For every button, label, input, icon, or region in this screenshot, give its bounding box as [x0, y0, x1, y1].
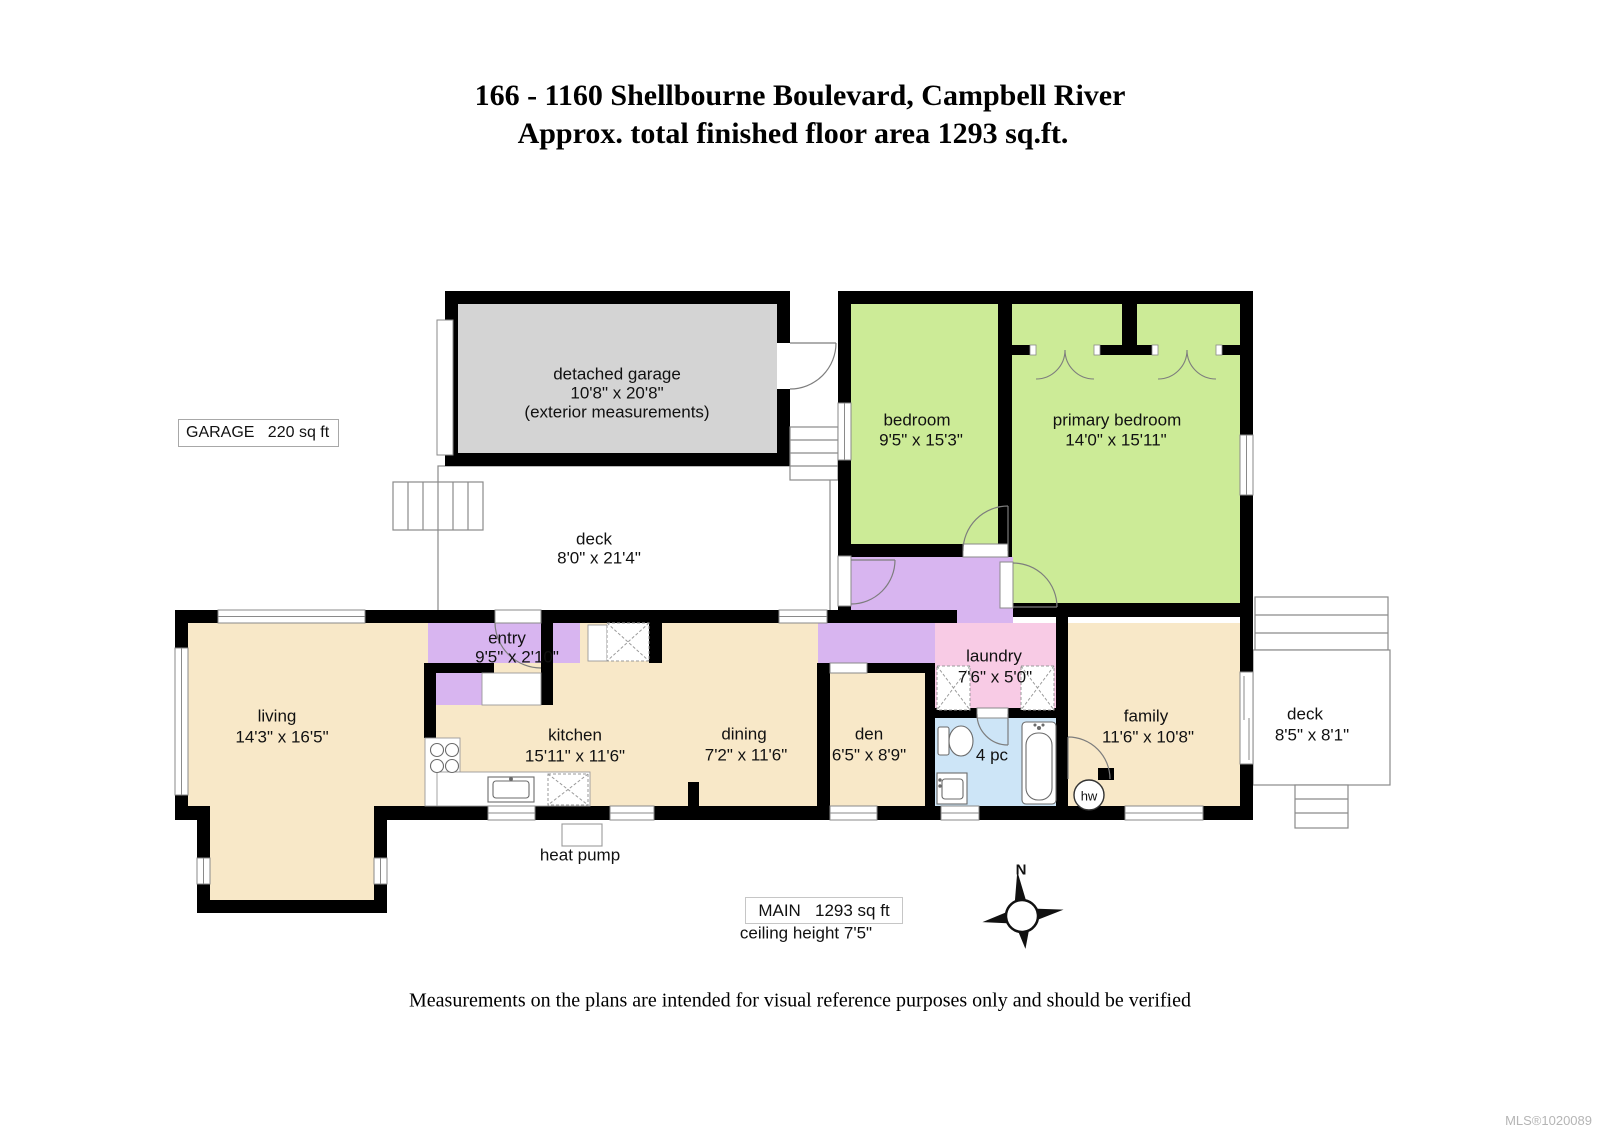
- room-label-kitchen: kitchen: [548, 726, 602, 745]
- patio-slider-family: [1240, 672, 1253, 764]
- bath-door-opening: [977, 708, 1008, 718]
- living-bay: [197, 806, 387, 913]
- entry-door-opening: [495, 610, 541, 623]
- window-living-top: [218, 610, 365, 623]
- hall-exterior-door-opening: [838, 556, 851, 606]
- window-living-left: [175, 648, 188, 795]
- room-dims-dining: 7'2" x 11'6": [705, 746, 788, 765]
- garage-side-door-opening: [777, 343, 790, 389]
- entry-closet: [482, 673, 541, 705]
- kitchen-sink-icon: [488, 777, 534, 802]
- room-dims-den: 6'5" x 8'9": [832, 746, 906, 765]
- window-bay-left: [197, 858, 210, 884]
- primary-door-opening: [1000, 562, 1013, 608]
- toilet-icon: [938, 726, 973, 756]
- bath-vanity-icon: [937, 773, 967, 804]
- dishwasher-icon: [548, 774, 588, 805]
- room-dims-garage: 10'8" x 20'8": [570, 384, 663, 403]
- room-label-deck-right: deck: [1287, 705, 1323, 724]
- window-bath: [941, 806, 979, 820]
- right-deck-stairs: [1295, 785, 1348, 828]
- room-dims-entry: 9'5" x 2'10": [475, 648, 559, 667]
- window-top-dining: [779, 610, 827, 623]
- main-floor-tan: [188, 623, 1240, 806]
- window-den: [830, 806, 877, 820]
- room-label-living: living: [258, 707, 297, 726]
- window-bay-right: [374, 858, 387, 884]
- garage-area-badge: GARAGE 220 sq ft: [178, 419, 339, 447]
- room-label-entry: entry: [488, 629, 526, 648]
- room-label-primary: primary bedroom: [1053, 411, 1182, 430]
- north-label: N: [1016, 861, 1027, 880]
- room-label-dining: dining: [721, 725, 766, 744]
- bedroom-door-opening: [963, 544, 1008, 557]
- garage-door: [437, 320, 453, 455]
- heat-pump-label: heat pump: [540, 846, 620, 865]
- window-kitchen: [488, 806, 535, 820]
- window-family: [1125, 806, 1203, 820]
- kitchen-cabinet: [588, 625, 607, 661]
- room-dims-family: 11'6" x 10'8": [1102, 728, 1194, 747]
- pantry-icon: [607, 623, 649, 661]
- room-label-deck-upper: deck: [576, 530, 612, 549]
- garage-side-door-arc: [790, 343, 836, 389]
- room-dims-bedroom: 9'5" x 15'3": [879, 431, 963, 450]
- room-label-laundry: laundry: [966, 647, 1022, 666]
- room-dims-kitchen: 15'11" x 11'6": [525, 747, 625, 766]
- hot-water-label: hw: [1081, 787, 1098, 806]
- page-title-line1: 166 - 1160 Shellbourne Boulevard, Campbe…: [475, 79, 1126, 113]
- bathtub-icon: [1022, 722, 1056, 804]
- room-dims-primary: 14'0" x 15'11": [1065, 431, 1166, 450]
- window-primary-right: [1240, 435, 1253, 495]
- floorplan-drawing: [0, 0, 1600, 1130]
- room-label-family: family: [1124, 707, 1168, 726]
- room-label-den: den: [855, 725, 883, 744]
- floorplan-page: 166 - 1160 Shellbourne Boulevard, Campbe…: [0, 0, 1600, 1130]
- mls-number: MLS®1020089: [1505, 1113, 1592, 1128]
- den-door-opening: [830, 663, 867, 673]
- main-area-badge: MAIN 1293 sq ft: [745, 897, 903, 924]
- room-label-garage: detached garage: [553, 365, 681, 384]
- disclaimer-text: Measurements on the plans are intended f…: [409, 990, 1191, 1013]
- room-label-bedroom: bedroom: [883, 411, 950, 430]
- window-dining: [610, 806, 654, 820]
- room-dims-deck-right: 8'5" x 8'1": [1275, 726, 1349, 745]
- heat-pump-unit: [562, 824, 602, 846]
- main-floor-fills: [188, 623, 1240, 806]
- room-dims-laundry: 7'6" x 5'0": [958, 668, 1032, 687]
- compass-icon: [978, 867, 1068, 953]
- side-steps: [790, 427, 838, 480]
- room-dims-deck-upper: 8'0" x 21'4": [557, 549, 641, 568]
- ceiling-height-label: ceiling height 7'5": [740, 924, 872, 943]
- window-bedroom-left: [838, 403, 851, 460]
- page-title-line2: Approx. total finished floor area 1293 s…: [518, 117, 1069, 151]
- room-dims-living: 14'3" x 16'5": [235, 728, 328, 747]
- room-label-bathroom: 4 pc: [976, 746, 1008, 765]
- room-note-garage: (exterior measurements): [524, 403, 709, 422]
